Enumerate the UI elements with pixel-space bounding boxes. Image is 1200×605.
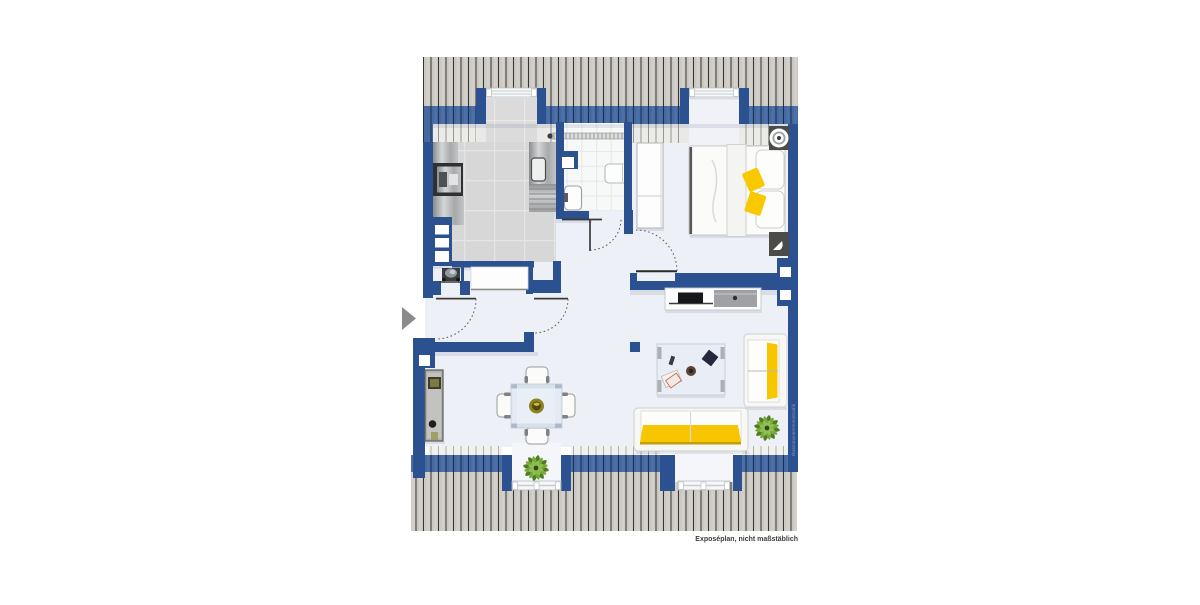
svg-text:IllustrationenImmoGrafik: IllustrationenImmoGrafik bbox=[791, 403, 797, 456]
svg-text:Exposéplan, nicht maßstäblich: Exposéplan, nicht maßstäblich bbox=[695, 536, 798, 543]
